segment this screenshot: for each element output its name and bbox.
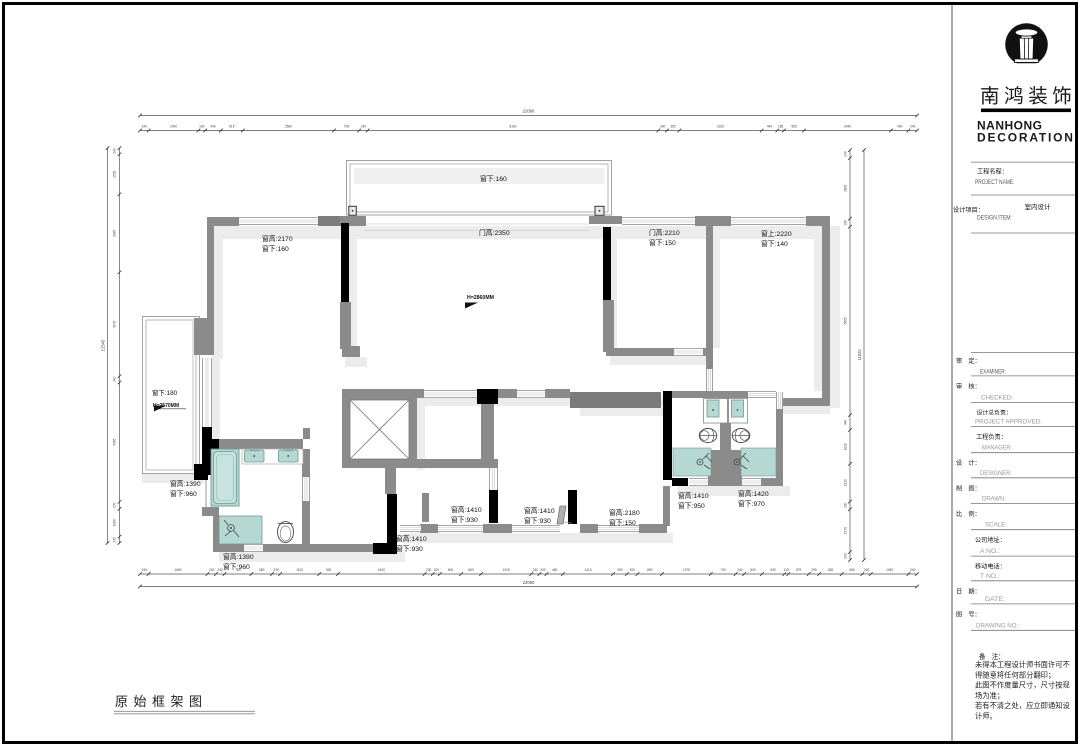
svg-text:SCALE:: SCALE: <box>985 522 1007 529</box>
svg-text:审 定：: 审 定： <box>956 357 981 365</box>
svg-text:场为准；: 场为准； <box>975 691 1004 700</box>
svg-text:窗下:930: 窗下:930 <box>396 544 423 553</box>
svg-text:窗下:140: 窗下:140 <box>761 239 788 248</box>
svg-text:22090: 22090 <box>523 580 535 585</box>
svg-text:615: 615 <box>229 125 235 129</box>
svg-text:未得本工程设计师书面许可不: 未得本工程设计师书面许可不 <box>975 660 1070 669</box>
svg-text:窗下:180: 窗下:180 <box>152 388 178 397</box>
svg-text:1400: 1400 <box>170 125 177 129</box>
svg-text:室内设计: 室内设计 <box>1025 202 1052 211</box>
svg-text:22090: 22090 <box>523 109 535 114</box>
svg-text:240: 240 <box>113 376 117 382</box>
svg-text:240: 240 <box>737 568 743 572</box>
svg-text:审 核：: 审 核： <box>956 382 981 390</box>
svg-text:移动电话：: 移动电话： <box>975 563 1006 571</box>
svg-text:1800: 1800 <box>844 185 848 192</box>
svg-text:240: 240 <box>844 553 848 559</box>
svg-text:得随意将任何部分翻印；: 得随意将任何部分翻印； <box>975 670 1055 679</box>
svg-text:1660: 1660 <box>174 568 181 572</box>
svg-text:窗下:160: 窗下:160 <box>480 174 507 183</box>
svg-text:窗下:930: 窗下:930 <box>524 516 551 525</box>
svg-text:T NO.:: T NO.: <box>980 573 1000 580</box>
svg-text:工程负责：: 工程负责： <box>976 433 1007 441</box>
svg-text:1060: 1060 <box>886 568 893 572</box>
svg-text:窗高:1420: 窗高:1420 <box>738 489 769 498</box>
svg-text:若有不清之处，应立即通知设: 若有不清之处，应立即通知设 <box>975 701 1071 710</box>
svg-text:CHECKED:: CHECKED: <box>981 394 1013 401</box>
svg-text:H=2860MM: H=2860MM <box>467 295 494 301</box>
svg-text:600: 600 <box>448 568 454 572</box>
svg-text:2560: 2560 <box>285 125 292 129</box>
svg-text:705: 705 <box>344 125 350 129</box>
svg-text:200: 200 <box>434 568 440 572</box>
svg-text:270: 270 <box>113 502 117 508</box>
svg-text:2310: 2310 <box>717 125 724 129</box>
svg-text:490: 490 <box>897 125 903 129</box>
svg-text:460: 460 <box>552 568 558 572</box>
svg-text:日 期：: 日 期： <box>956 587 981 595</box>
svg-text:窗高:1410: 窗高:1410 <box>396 534 427 543</box>
svg-text:240: 240 <box>844 151 848 157</box>
svg-text:窗高:1390: 窗高:1390 <box>170 479 201 488</box>
svg-text:500: 500 <box>750 568 756 572</box>
svg-text:DESIGN ITEM:: DESIGN ITEM: <box>977 215 1012 222</box>
svg-text:窗下:930: 窗下:930 <box>451 515 478 524</box>
svg-text:440: 440 <box>844 420 848 426</box>
svg-text:1060: 1060 <box>113 519 117 526</box>
svg-text:1270: 1270 <box>844 527 848 534</box>
svg-text:DECORATION: DECORATION <box>977 131 1075 145</box>
svg-text:窗下:950: 窗下:950 <box>678 501 705 510</box>
svg-text:230: 230 <box>844 502 848 508</box>
svg-text:1415: 1415 <box>584 568 591 572</box>
svg-text:240: 240 <box>660 125 666 129</box>
svg-text:295: 295 <box>811 568 817 572</box>
svg-text:11920: 11920 <box>857 349 862 361</box>
svg-text:240: 240 <box>142 568 148 572</box>
svg-text:4565: 4565 <box>113 438 117 445</box>
svg-text:690: 690 <box>647 568 653 572</box>
svg-text:比 例：: 比 例： <box>956 510 981 518</box>
svg-text:185: 185 <box>778 125 784 129</box>
svg-text:窗下:960: 窗下:960 <box>170 489 197 498</box>
svg-text:窗高:1410: 窗高:1410 <box>524 506 555 515</box>
svg-text:565: 565 <box>791 125 797 129</box>
svg-text:制 图：: 制 图： <box>956 484 981 492</box>
svg-text:图 号：: 图 号： <box>956 611 981 618</box>
svg-text:700: 700 <box>721 568 727 572</box>
svg-text:DRAWING NO.:: DRAWING NO.: <box>976 622 1020 629</box>
svg-text:窗高:2180: 窗高:2180 <box>609 508 640 517</box>
svg-text:12545: 12545 <box>101 339 106 351</box>
svg-text:DRAWN:: DRAWN: <box>982 496 1006 503</box>
svg-text:560: 560 <box>468 568 474 572</box>
svg-text:8160: 8160 <box>509 125 516 129</box>
svg-text:240: 240 <box>113 148 117 154</box>
svg-text:EXAMINER:: EXAMINER: <box>980 368 1006 375</box>
svg-text:1010: 1010 <box>844 443 848 450</box>
svg-text:230: 230 <box>273 568 279 572</box>
svg-text:计师。: 计师。 <box>975 712 997 721</box>
svg-text:窗下:960: 窗下:960 <box>223 562 250 571</box>
svg-text:580: 580 <box>259 568 265 572</box>
svg-text:3970: 3970 <box>113 320 117 327</box>
svg-text:240: 240 <box>910 125 916 129</box>
svg-text:1375: 1375 <box>683 568 690 572</box>
svg-text:原始框架图: 原始框架图 <box>115 694 208 709</box>
svg-text:240: 240 <box>142 125 148 129</box>
svg-text:390: 390 <box>617 568 623 572</box>
svg-text:2985: 2985 <box>113 230 117 237</box>
svg-text:工程名程：: 工程名程： <box>977 168 1008 176</box>
svg-text:240: 240 <box>844 220 848 226</box>
svg-text:580: 580 <box>849 568 855 572</box>
svg-text:设 计：: 设 计： <box>956 459 981 467</box>
svg-text:300: 300 <box>630 568 636 572</box>
svg-text:530: 530 <box>326 568 332 572</box>
svg-text:575: 575 <box>796 568 802 572</box>
svg-text:门高:2350: 门高:2350 <box>479 228 510 237</box>
svg-text:240: 240 <box>209 568 215 572</box>
svg-text:窗高:1410: 窗高:1410 <box>451 505 482 514</box>
svg-text:MANAGER:: MANAGER: <box>982 445 1012 452</box>
svg-text:窗上:2220: 窗上:2220 <box>761 229 792 238</box>
svg-text:窗高:2170: 窗高:2170 <box>262 234 293 243</box>
svg-text:门高:2210: 门高:2210 <box>649 228 680 237</box>
svg-text:1415: 1415 <box>503 568 510 572</box>
svg-text:350: 350 <box>670 125 676 129</box>
svg-text:1530: 1530 <box>113 171 117 178</box>
svg-text:2440: 2440 <box>844 125 851 129</box>
svg-text:200: 200 <box>540 568 546 572</box>
svg-text:PROJECT APPROVED:: PROJECT APPROVED: <box>975 418 1042 425</box>
svg-text:窗高:1410: 窗高:1410 <box>678 491 709 500</box>
svg-text:PROJECT NAME:: PROJECT NAME: <box>975 179 1015 186</box>
svg-text:230: 230 <box>426 568 432 572</box>
svg-text:190: 190 <box>199 125 205 129</box>
svg-text:设计总负责：: 设计总负责： <box>977 408 1012 416</box>
svg-text:240: 240 <box>910 568 916 572</box>
svg-text:窗高:1390: 窗高:1390 <box>223 552 254 561</box>
svg-text:440: 440 <box>210 125 216 129</box>
svg-text:240: 240 <box>361 125 367 129</box>
svg-text:A NO.:: A NO.: <box>980 548 1000 555</box>
svg-text:1120: 1120 <box>844 479 848 486</box>
svg-text:440: 440 <box>767 125 773 129</box>
svg-text:公司地址：: 公司地址： <box>975 536 1006 544</box>
svg-text:5605: 5605 <box>844 317 848 324</box>
svg-text:245: 245 <box>113 537 117 543</box>
svg-text:窗下:150: 窗下:150 <box>609 518 636 527</box>
svg-text:窗下:160: 窗下:160 <box>262 244 289 253</box>
svg-text:DATE:: DATE: <box>985 596 1005 603</box>
svg-text:240: 240 <box>864 568 870 572</box>
svg-text:2440: 2440 <box>378 568 385 572</box>
svg-text:1100: 1100 <box>296 568 303 572</box>
svg-text:此图不作度量尺寸，尺寸按现: 此图不作度量尺寸，尺寸按现 <box>975 681 1070 690</box>
svg-text:630: 630 <box>770 568 776 572</box>
svg-text:南鸿装饰: 南鸿装饰 <box>980 86 1076 108</box>
svg-text:230: 230 <box>533 568 539 572</box>
svg-text:DESIGNER:: DESIGNER: <box>980 470 1012 477</box>
svg-text:设计项目：: 设计项目： <box>953 206 984 214</box>
svg-text:窗下:150: 窗下:150 <box>649 238 676 247</box>
svg-text:635: 635 <box>828 568 834 572</box>
svg-text:窗下:970: 窗下:970 <box>738 499 765 508</box>
svg-text:115: 115 <box>784 568 789 572</box>
